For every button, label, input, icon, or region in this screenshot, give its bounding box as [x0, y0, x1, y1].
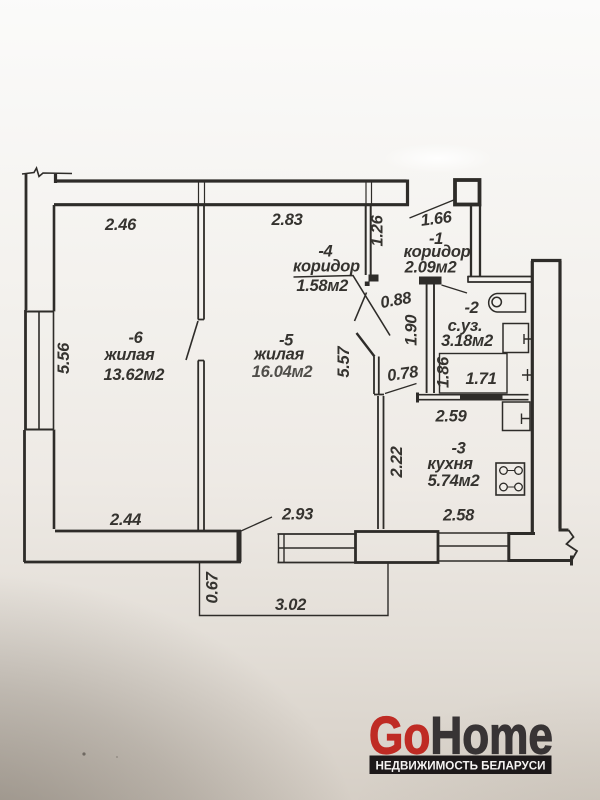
- svg-text:5.56: 5.56: [55, 342, 73, 374]
- svg-text:13.62м2: 13.62м2: [104, 366, 165, 384]
- svg-text:2.93: 2.93: [281, 506, 313, 524]
- svg-text:-6: -6: [128, 329, 143, 347]
- svg-text:5.74м2: 5.74м2: [428, 472, 480, 490]
- svg-text:коридор: коридор: [293, 258, 360, 276]
- svg-text:кухня: кухня: [427, 455, 473, 473]
- svg-text:1.90: 1.90: [402, 314, 420, 346]
- svg-text:16.04м2: 16.04м2: [252, 363, 313, 381]
- svg-text:3.18м2: 3.18м2: [441, 332, 493, 350]
- svg-text:5.57: 5.57: [335, 346, 353, 378]
- svg-text:жилая: жилая: [104, 346, 155, 364]
- svg-text:2.58: 2.58: [442, 507, 475, 525]
- svg-text:0.67: 0.67: [204, 571, 222, 603]
- svg-text:2.59: 2.59: [435, 408, 468, 426]
- svg-text:0.78: 0.78: [386, 363, 420, 385]
- svg-text:2.44: 2.44: [109, 511, 141, 529]
- svg-text:НЕДВИЖИМОСТЬ БЕЛАРУСИ: НЕДВИЖИМОСТЬ БЕЛАРУСИ: [376, 759, 546, 773]
- svg-text:1.71: 1.71: [466, 370, 497, 388]
- svg-text:0.88: 0.88: [379, 289, 414, 312]
- svg-text:1.58м2: 1.58м2: [296, 277, 348, 295]
- svg-text:1.26: 1.26: [369, 214, 387, 246]
- svg-text:1.66: 1.66: [420, 208, 454, 230]
- svg-text:2.83: 2.83: [271, 211, 303, 229]
- svg-text:2.22: 2.22: [388, 446, 406, 478]
- svg-text:1.86: 1.86: [435, 356, 453, 388]
- svg-text:2.09м2: 2.09м2: [404, 259, 457, 277]
- svg-text:жилая: жилая: [253, 346, 304, 364]
- svg-text:3.02: 3.02: [275, 596, 306, 614]
- svg-text:2.46: 2.46: [104, 216, 137, 234]
- svg-text:-2: -2: [464, 299, 478, 317]
